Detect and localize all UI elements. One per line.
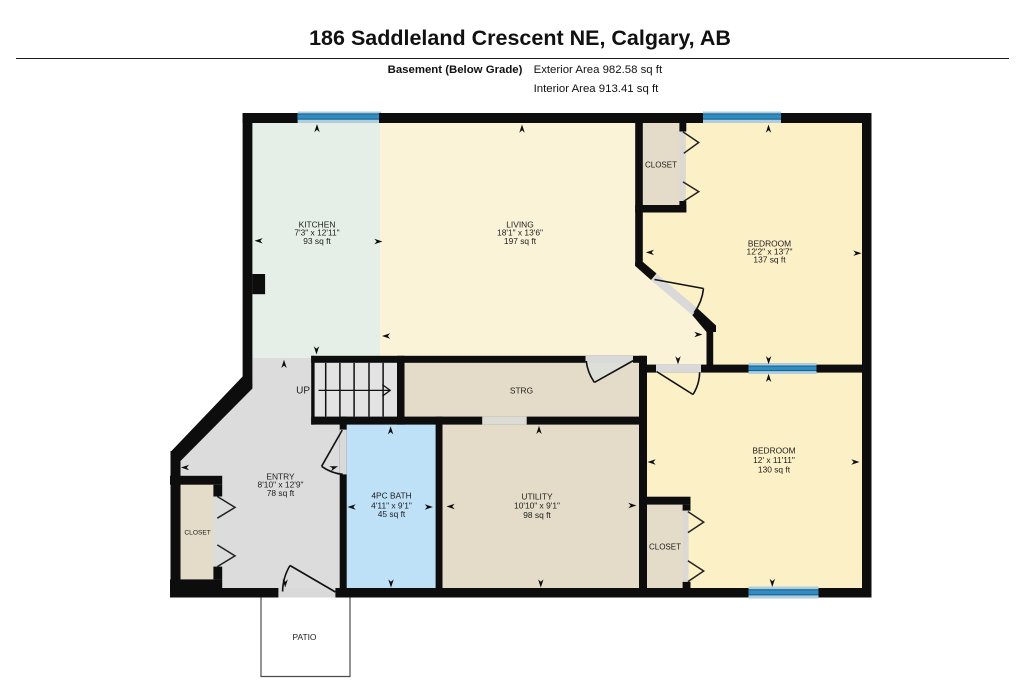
svg-text:130 sq ft: 130 sq ft [758,465,791,475]
svg-text:78 sq ft: 78 sq ft [267,488,295,498]
svg-text:12' x 11'11": 12' x 11'11" [753,455,795,465]
svg-text:98 sq ft: 98 sq ft [523,510,551,520]
svg-text:BEDROOM: BEDROOM [752,446,795,456]
svg-text:CLOSET: CLOSET [645,160,677,169]
svg-text:197 sq ft: 197 sq ft [504,236,537,246]
svg-text:STRG: STRG [510,386,533,396]
svg-text:CLOSET: CLOSET [649,543,681,552]
svg-text:137 sq ft: 137 sq ft [753,255,786,265]
svg-text:4PC BATH: 4PC BATH [371,491,411,501]
svg-text:UP: UP [296,386,310,397]
svg-text:PATIO: PATIO [293,632,317,642]
svg-text:93 sq ft: 93 sq ft [303,236,331,246]
svg-text:CLOSET: CLOSET [184,530,210,537]
svg-text:45 sq ft: 45 sq ft [378,509,406,519]
